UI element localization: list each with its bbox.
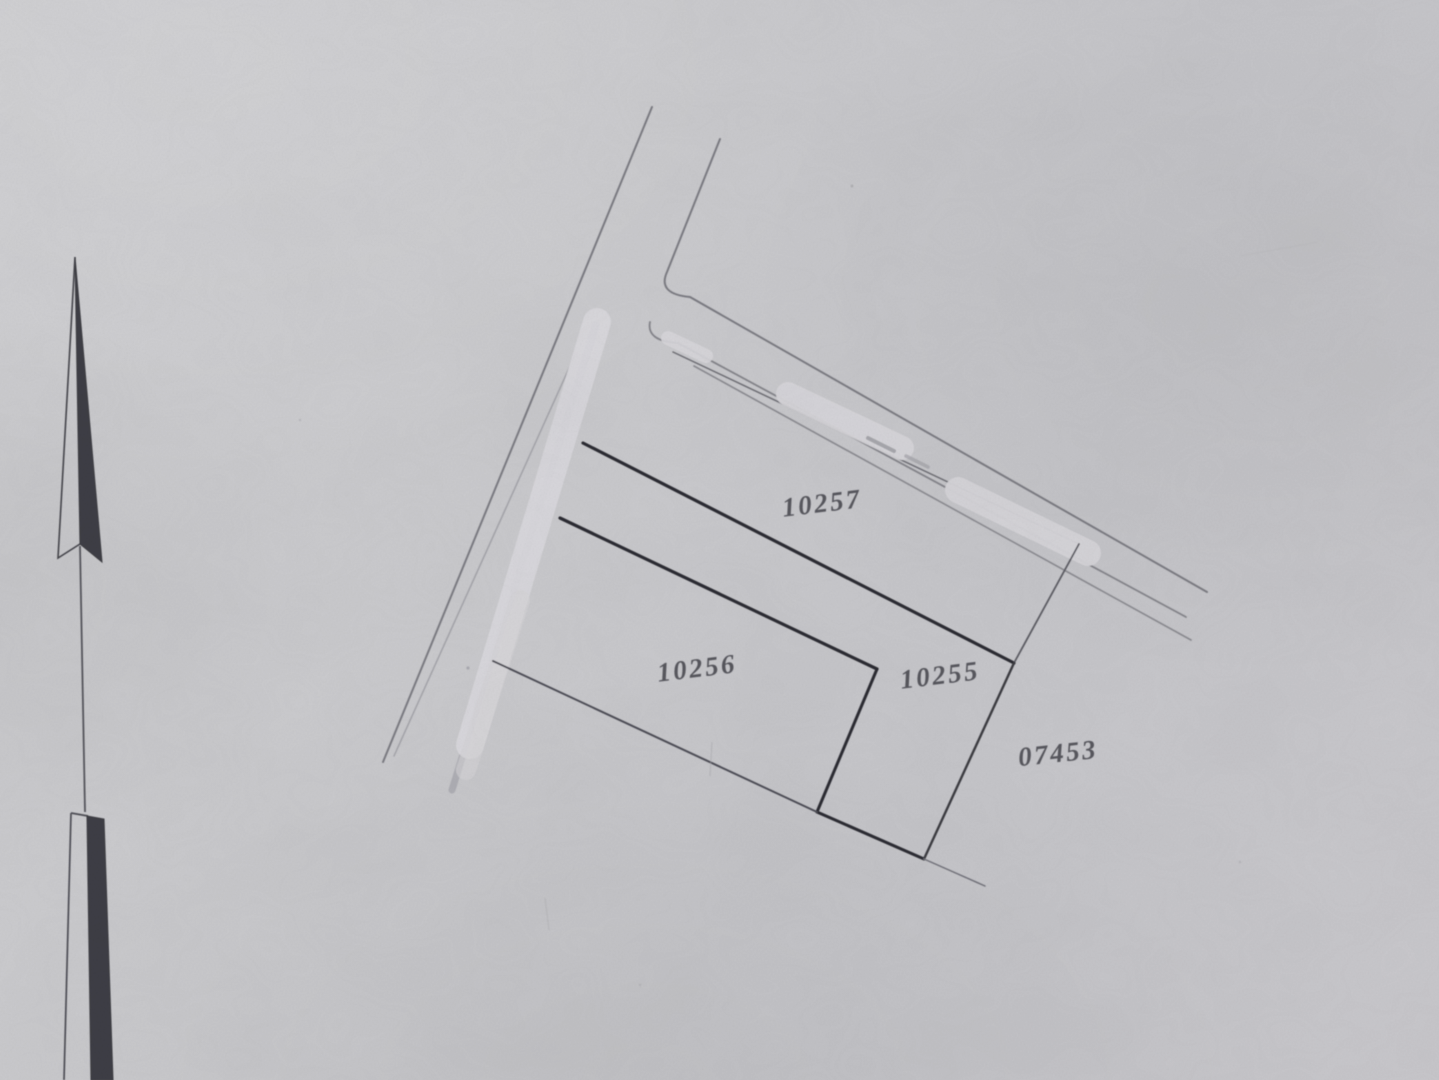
- scanned-plan-page: 10257 10256 10255 07453: [0, 0, 1439, 1080]
- plan-drawing: 10257 10256 10255 07453: [0, 0, 1439, 1080]
- paper-mottle-overlay: [0, 0, 1439, 1080]
